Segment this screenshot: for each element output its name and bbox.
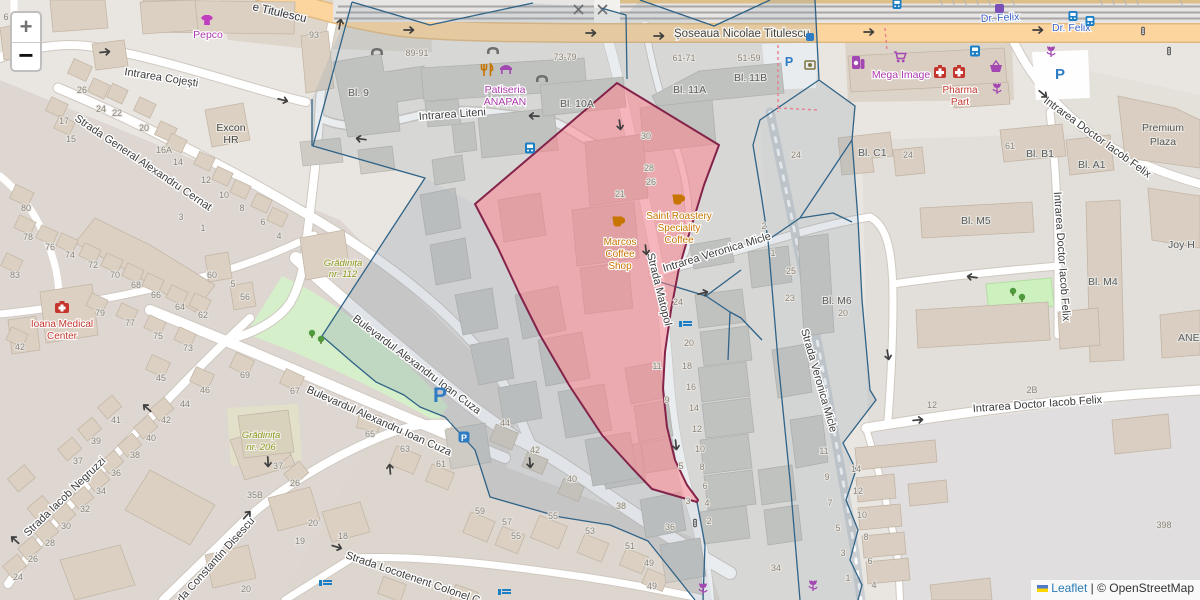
svg-text:9: 9 — [664, 395, 669, 405]
svg-text:Bl. 11A: Bl. 11A — [673, 84, 706, 96]
svg-text:78: 78 — [23, 232, 33, 242]
svg-text:56: 56 — [240, 292, 250, 302]
svg-text:17: 17 — [59, 116, 69, 126]
svg-text:24: 24 — [791, 150, 801, 160]
svg-text:32: 32 — [80, 504, 90, 514]
svg-text:3: 3 — [178, 212, 183, 222]
svg-text:4: 4 — [704, 498, 709, 508]
svg-text:16: 16 — [686, 382, 696, 392]
svg-text:20: 20 — [838, 308, 848, 318]
svg-text:61: 61 — [436, 459, 446, 469]
svg-text:10: 10 — [219, 190, 229, 200]
svg-text:51-59: 51-59 — [737, 53, 760, 63]
svg-text:4: 4 — [871, 580, 876, 590]
svg-text:26: 26 — [28, 554, 38, 564]
svg-text:ANE: ANE — [1178, 332, 1200, 344]
svg-text:11: 11 — [819, 446, 828, 456]
svg-text:59: 59 — [475, 506, 485, 516]
svg-text:60: 60 — [207, 270, 217, 280]
svg-text:Patiseria: Patiseria — [485, 84, 526, 96]
svg-text:24: 24 — [673, 297, 683, 307]
svg-text:Premium: Premium — [1142, 122, 1184, 134]
svg-text:ANAPAN: ANAPAN — [484, 96, 526, 108]
svg-text:37: 37 — [273, 461, 283, 471]
svg-text:9: 9 — [824, 472, 829, 482]
svg-text:26: 26 — [646, 177, 656, 187]
svg-text:Ioana Medical: Ioana Medical — [31, 319, 93, 330]
svg-text:67: 67 — [290, 386, 300, 396]
svg-text:61-71: 61-71 — [672, 53, 695, 63]
svg-text:Pharma: Pharma — [942, 85, 977, 96]
svg-text:45: 45 — [156, 373, 166, 383]
svg-text:Saint Roastery: Saint Roastery — [646, 211, 712, 222]
svg-text:40: 40 — [567, 474, 577, 484]
svg-text:Speciality: Speciality — [658, 223, 701, 234]
svg-text:14: 14 — [689, 403, 699, 413]
svg-text:12: 12 — [853, 486, 863, 496]
svg-text:18: 18 — [682, 361, 692, 371]
svg-text:21: 21 — [615, 189, 625, 199]
svg-text:26: 26 — [290, 478, 300, 488]
svg-text:10: 10 — [857, 510, 867, 520]
svg-text:Marcos: Marcos — [604, 237, 637, 248]
svg-text:24: 24 — [96, 104, 106, 114]
svg-text:73-79: 73-79 — [553, 52, 576, 62]
svg-text:5: 5 — [678, 461, 683, 471]
svg-text:nr. 206: nr. 206 — [246, 442, 276, 453]
svg-text:4: 4 — [276, 231, 281, 241]
svg-text:7: 7 — [827, 498, 832, 508]
svg-text:57: 57 — [502, 517, 512, 527]
svg-text:83: 83 — [10, 270, 20, 280]
svg-text:75: 75 — [153, 331, 163, 341]
svg-text:26: 26 — [77, 85, 87, 95]
svg-text:Bl. C1: Bl. C1 — [858, 147, 887, 159]
svg-text:42: 42 — [15, 342, 25, 352]
svg-text:Bl. 11B: Bl. 11B — [734, 72, 767, 84]
svg-text:Dr. Felix: Dr. Felix — [981, 11, 1021, 25]
svg-text:1: 1 — [770, 248, 775, 258]
svg-text:49: 49 — [644, 558, 654, 568]
svg-text:37: 37 — [73, 456, 83, 466]
svg-text:HR: HR — [223, 134, 239, 146]
svg-text:12: 12 — [201, 175, 211, 185]
svg-text:70: 70 — [110, 270, 120, 280]
svg-text:6: 6 — [3, 12, 8, 22]
svg-text:Dr. Felix: Dr. Felix — [1052, 22, 1091, 34]
svg-text:Joy H: Joy H — [1168, 239, 1195, 251]
svg-text:22: 22 — [112, 108, 122, 118]
svg-text:30: 30 — [61, 521, 71, 531]
svg-text:Bl. A1: Bl. A1 — [1078, 159, 1106, 171]
svg-text:55: 55 — [548, 511, 558, 521]
svg-text:66: 66 — [151, 290, 161, 300]
svg-text:20: 20 — [684, 338, 694, 348]
svg-text:2: 2 — [706, 516, 711, 526]
svg-text:55: 55 — [511, 531, 521, 541]
svg-text:19: 19 — [295, 536, 305, 546]
svg-text:Șoseaua Nicolae Titulescu: Șoseaua Nicolae Titulescu — [674, 28, 810, 40]
svg-text:28: 28 — [45, 538, 55, 548]
svg-text:25: 25 — [786, 266, 796, 276]
svg-text:Excon: Excon — [216, 122, 245, 134]
svg-text:63: 63 — [400, 444, 410, 454]
svg-text:Part: Part — [951, 97, 970, 108]
svg-text:68: 68 — [131, 280, 141, 290]
svg-text:36: 36 — [665, 522, 675, 532]
svg-text:40: 40 — [146, 433, 156, 443]
svg-text:35B: 35B — [247, 490, 263, 500]
svg-text:73: 73 — [183, 343, 193, 353]
svg-text:P: P — [1055, 66, 1065, 83]
svg-text:23: 23 — [785, 293, 795, 303]
svg-text:44: 44 — [500, 418, 510, 428]
svg-text:62: 62 — [198, 310, 208, 320]
svg-text:36: 36 — [111, 468, 121, 478]
svg-text:12: 12 — [692, 424, 702, 434]
svg-text:8: 8 — [863, 532, 868, 542]
svg-text:14: 14 — [851, 464, 861, 474]
svg-text:8: 8 — [699, 462, 704, 472]
svg-text:2B: 2B — [1026, 385, 1037, 395]
svg-text:10: 10 — [695, 444, 705, 454]
svg-text:79: 79 — [95, 308, 105, 318]
svg-text:72: 72 — [88, 260, 98, 270]
svg-text:89-91: 89-91 — [405, 48, 428, 58]
svg-text:69: 69 — [240, 370, 250, 380]
svg-text:nr. 112: nr. 112 — [329, 269, 358, 280]
svg-text:Grădinița: Grădinița — [324, 258, 363, 269]
svg-text:1: 1 — [845, 573, 850, 583]
svg-text:6: 6 — [867, 556, 872, 566]
svg-text:80: 80 — [21, 203, 31, 213]
svg-text:61: 61 — [1005, 141, 1015, 151]
svg-text:41: 41 — [111, 415, 121, 425]
svg-text:76: 76 — [45, 242, 55, 252]
svg-text:74: 74 — [65, 250, 75, 260]
svg-text:18: 18 — [338, 531, 348, 541]
svg-text:Plaza: Plaza — [1150, 136, 1176, 148]
svg-text:77: 77 — [125, 318, 135, 328]
svg-text:3: 3 — [685, 496, 690, 506]
svg-text:12: 12 — [927, 400, 937, 410]
svg-text:14: 14 — [173, 157, 183, 167]
svg-text:6: 6 — [702, 481, 707, 491]
svg-text:Grădinița: Grădinița — [242, 430, 281, 441]
svg-text:Mega Image: Mega Image — [872, 69, 931, 81]
svg-text:39: 39 — [91, 436, 101, 446]
svg-text:24: 24 — [13, 572, 23, 582]
svg-text:51: 51 — [625, 541, 635, 551]
svg-text:Bl. 9: Bl. 9 — [348, 87, 369, 99]
svg-text:16A: 16A — [156, 145, 172, 155]
svg-text:Bl. M6: Bl. M6 — [822, 295, 852, 307]
svg-text:Bl. M4: Bl. M4 — [1088, 276, 1118, 288]
svg-text:Coffee: Coffee — [664, 235, 694, 246]
svg-text:3: 3 — [840, 548, 845, 558]
svg-text:20: 20 — [308, 518, 318, 528]
svg-text:20: 20 — [139, 123, 149, 133]
svg-text:Shop: Shop — [608, 261, 632, 272]
svg-text:15: 15 — [66, 134, 76, 144]
svg-text:398: 398 — [1156, 520, 1171, 530]
svg-text:42: 42 — [530, 445, 540, 455]
svg-text:Coffee: Coffee — [605, 249, 635, 260]
svg-text:34: 34 — [96, 486, 106, 496]
svg-text:38: 38 — [616, 501, 626, 511]
svg-text:64: 64 — [175, 302, 185, 312]
svg-text:30: 30 — [641, 131, 651, 141]
svg-text:Bl. M5: Bl. M5 — [961, 215, 991, 227]
svg-text:93: 93 — [309, 30, 319, 40]
svg-text:Center: Center — [47, 331, 78, 342]
svg-text:53: 53 — [585, 526, 595, 536]
svg-text:20: 20 — [241, 584, 251, 594]
svg-text:38: 38 — [130, 450, 140, 460]
svg-text:2: 2 — [761, 221, 766, 231]
svg-text:24: 24 — [903, 150, 913, 160]
svg-text:5: 5 — [835, 523, 840, 533]
svg-text:65: 65 — [365, 429, 375, 439]
svg-text:34: 34 — [771, 563, 781, 573]
svg-text:46: 46 — [200, 385, 210, 395]
svg-text:Pepco: Pepco — [193, 29, 223, 41]
svg-text:11: 11 — [652, 361, 661, 371]
svg-text:42: 42 — [161, 415, 171, 425]
svg-text:P: P — [433, 384, 447, 407]
svg-text:5: 5 — [230, 279, 235, 289]
svg-text:Bl. 10A: Bl. 10A — [560, 98, 594, 110]
svg-text:28: 28 — [644, 163, 654, 173]
svg-text:1: 1 — [200, 223, 205, 233]
svg-text:8: 8 — [239, 203, 244, 213]
svg-text:P: P — [785, 55, 793, 69]
svg-text:44: 44 — [180, 399, 190, 409]
svg-text:49: 49 — [647, 581, 657, 591]
svg-text:6: 6 — [260, 217, 265, 227]
svg-text:Bl. B1: Bl. B1 — [1026, 148, 1054, 160]
